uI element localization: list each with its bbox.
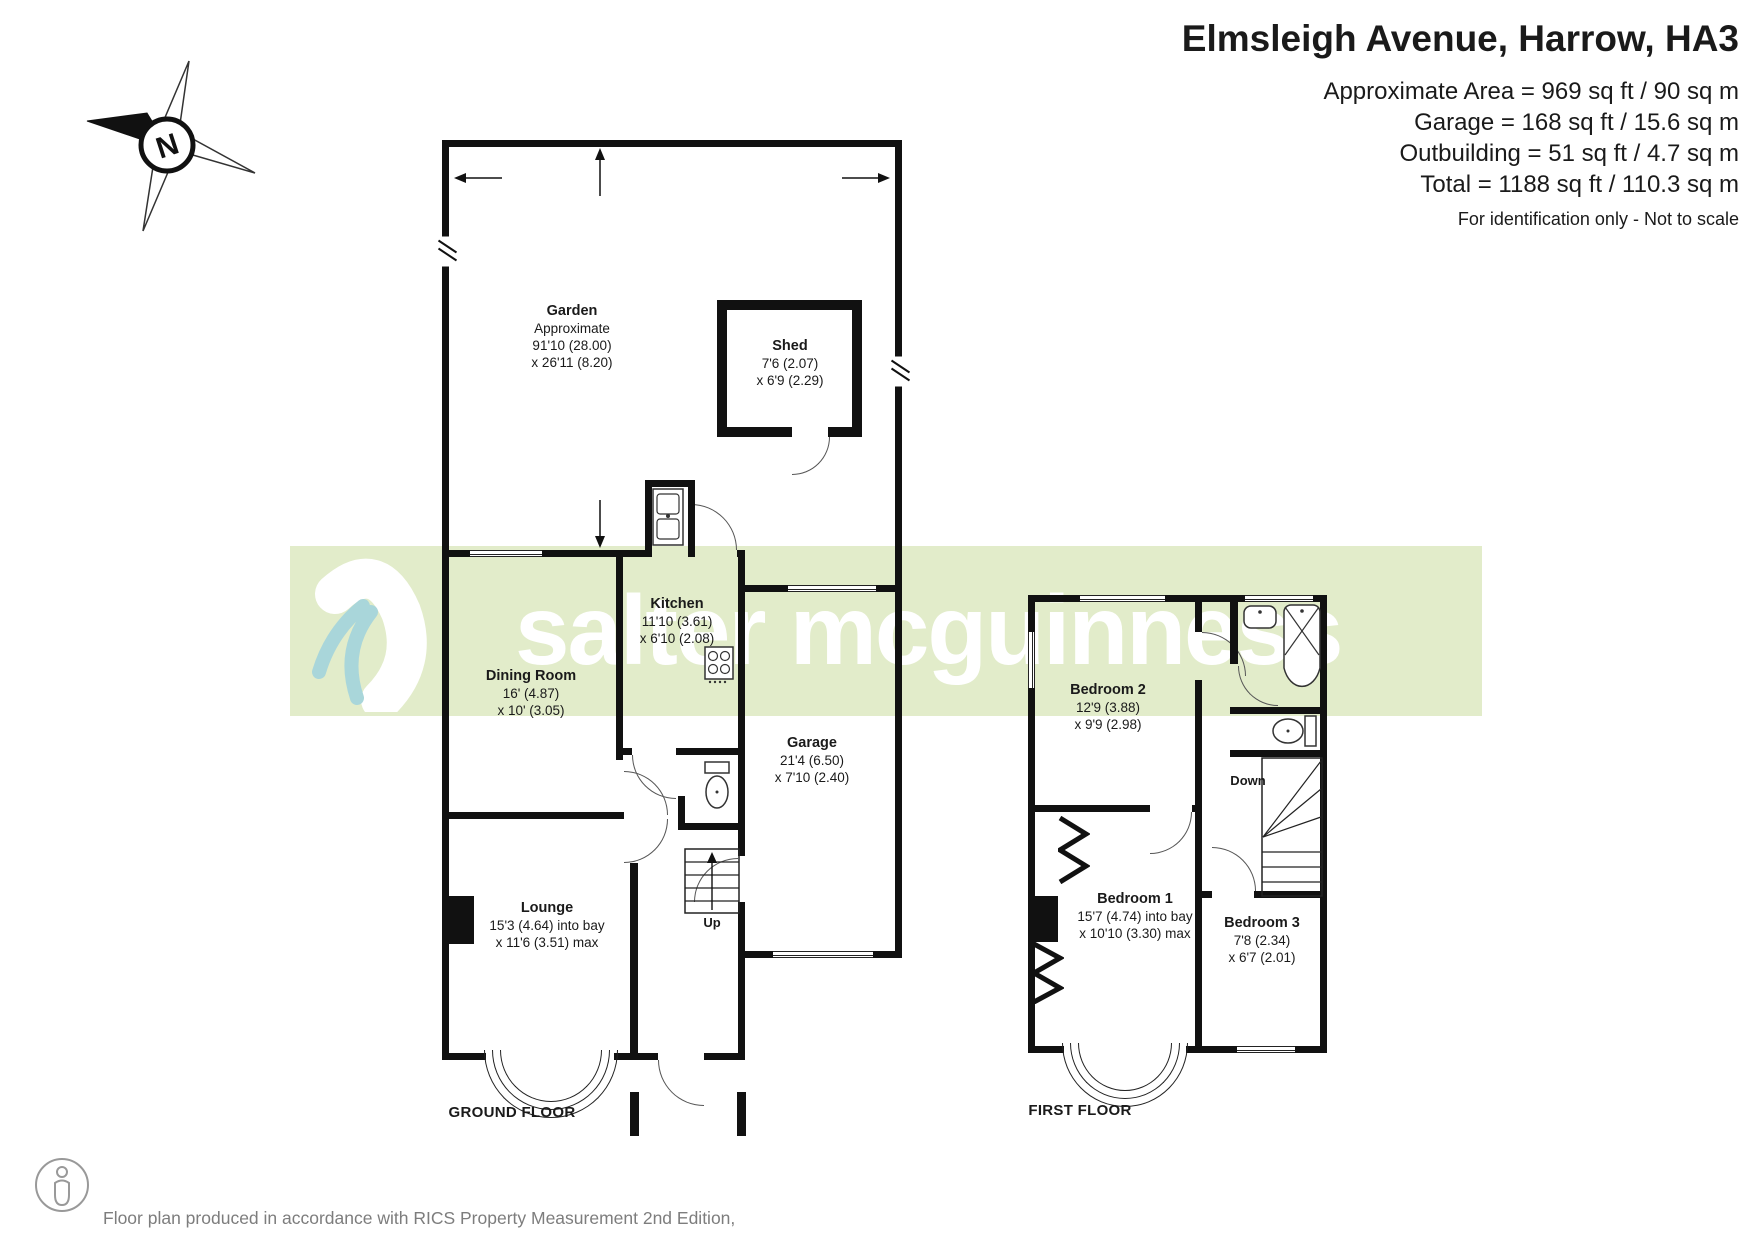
- arrow-left-icon: [452, 170, 504, 191]
- room-name: Garden: [531, 303, 612, 320]
- wall: [738, 902, 745, 1060]
- arrow-up-icon: [592, 146, 608, 203]
- toilet-icon: [700, 760, 734, 821]
- chimney-pier: [442, 896, 474, 944]
- room-label-kitchen: Kitchen 11'10 (3.61) x 6'10 (2.08): [640, 596, 715, 647]
- room-label-dining: Dining Room 16' (4.87) x 10' (3.05): [486, 668, 576, 719]
- wall: [717, 427, 792, 437]
- chimney-pier: [1028, 896, 1058, 942]
- room-name: Bedroom 3: [1224, 915, 1300, 932]
- garage-door: [773, 951, 873, 958]
- room-name: Shed: [756, 338, 823, 355]
- room-label-bedroom2: Bedroom 2 12'9 (3.88) x 9'9 (2.98): [1070, 682, 1146, 733]
- kitchen-sink-icon: [652, 488, 684, 551]
- wall: [616, 748, 632, 755]
- room-dim: 21'4 (6.50): [775, 752, 850, 769]
- room-label-garage: Garage 21'4 (6.50) x 7'10 (2.40): [775, 735, 850, 786]
- wall: [678, 823, 745, 830]
- wall: [442, 140, 449, 557]
- wall: [895, 585, 902, 958]
- bath-icon: [1281, 603, 1323, 704]
- floor-label-ground: GROUND FLOOR: [449, 1104, 576, 1121]
- room-dim: 12'9 (3.88): [1070, 699, 1146, 716]
- wall: [688, 480, 695, 557]
- window: [1237, 1046, 1295, 1053]
- room-name: Lounge: [489, 900, 604, 917]
- alcove-zigzag: [1032, 942, 1064, 1009]
- area-line: Garage = 168 sq ft / 15.6 sq m: [1182, 107, 1739, 138]
- area-line: Total = 1188 sq ft / 110.3 sq m: [1182, 169, 1739, 200]
- wall: [645, 480, 652, 557]
- wall: [1202, 891, 1212, 898]
- room-label-shed: Shed 7'6 (2.07) x 6'9 (2.29): [756, 338, 823, 389]
- footer-attribution: Floor plan produced in accordance with R…: [103, 1158, 896, 1241]
- wall: [676, 748, 745, 755]
- staircase-up: [684, 848, 740, 919]
- wall: [745, 951, 773, 958]
- hob-icon: [704, 646, 734, 689]
- room-name: Bedroom 1: [1077, 891, 1192, 908]
- disclaimer: For identification only - Not to scale: [1182, 209, 1739, 230]
- window: [788, 585, 876, 592]
- wall: [636, 1053, 658, 1060]
- floorplan-page: Elmsleigh Avenue, Harrow, HA3 Approximat…: [0, 0, 1755, 1241]
- wall: [873, 951, 902, 958]
- room-dim: 15'3 (4.64) into bay: [489, 917, 604, 934]
- room-name: Garage: [775, 735, 850, 752]
- room-label-bedroom3: Bedroom 3 7'8 (2.34) x 6'7 (2.01): [1224, 915, 1300, 966]
- wall: [1195, 602, 1202, 632]
- window: [1080, 595, 1165, 602]
- window: [1028, 632, 1035, 688]
- wall: [717, 300, 727, 437]
- room-dim: x 6'9 (2.29): [756, 372, 823, 389]
- room-dim: x 9'9 (2.98): [1070, 716, 1146, 733]
- room-dim: 11'10 (3.61): [640, 613, 715, 630]
- wall: [738, 550, 745, 592]
- room-dim: 7'8 (2.34): [1224, 932, 1300, 949]
- wall: [442, 812, 624, 819]
- wall: [737, 1092, 746, 1136]
- room-dim: 7'6 (2.07): [756, 355, 823, 372]
- wall: [442, 550, 449, 1060]
- wall: [630, 863, 638, 1053]
- arrow-down-icon: [592, 498, 608, 555]
- wall: [1195, 680, 1202, 805]
- wall: [852, 300, 862, 437]
- toilet-icon: [1268, 712, 1318, 755]
- door-arc: [1150, 812, 1192, 854]
- room-label-lounge: Lounge 15'3 (4.64) into bay x 11'6 (3.51…: [489, 900, 604, 951]
- wall: [630, 1092, 639, 1136]
- wall: [1028, 1046, 1064, 1053]
- watermark-logo-icon: [297, 550, 477, 717]
- stairs-label: Up: [703, 915, 720, 930]
- room-name: Dining Room: [486, 668, 576, 685]
- room-dim: x 7'10 (2.40): [775, 769, 850, 786]
- area-line: Approximate Area = 969 sq ft / 90 sq m: [1182, 76, 1739, 107]
- room-dim: 15'7 (4.74) into bay: [1077, 908, 1192, 925]
- stairs-label: Down: [1230, 773, 1265, 788]
- room-dim: 91'10 (28.00): [531, 337, 612, 354]
- area-line: Outbuilding = 51 sq ft / 4.7 sq m: [1182, 138, 1739, 169]
- basin-icon: [1243, 605, 1277, 634]
- staircase-down: [1261, 757, 1323, 902]
- room-dim: x 11'6 (3.51) max: [489, 934, 604, 951]
- wall: [738, 592, 745, 856]
- room-dim: x 6'10 (2.08): [640, 630, 715, 647]
- room-dim: Approximate: [531, 320, 612, 337]
- room-dim: x 26'11 (8.20): [531, 354, 612, 371]
- wall-break-icon: [432, 237, 459, 267]
- footer-line1: Floor plan produced in accordance with R…: [103, 1206, 896, 1230]
- wall: [442, 140, 902, 147]
- window: [1245, 595, 1313, 602]
- person-icon: [33, 1156, 91, 1219]
- room-label-bedroom1: Bedroom 1 15'7 (4.74) into bay x 10'10 (…: [1077, 891, 1192, 942]
- alcove-zigzag: [1058, 816, 1090, 889]
- room-dim: x 10' (3.05): [486, 702, 576, 719]
- door-arc: [658, 1060, 704, 1106]
- north-compass-icon: N: [85, 55, 260, 240]
- floor-label-first: FIRST FLOOR: [1028, 1102, 1131, 1119]
- wall: [1195, 805, 1202, 1053]
- wall: [616, 550, 623, 760]
- header: Elmsleigh Avenue, Harrow, HA3 Approximat…: [1182, 18, 1739, 230]
- door-arc: [691, 504, 737, 550]
- wall: [1028, 805, 1150, 812]
- room-name: Bedroom 2: [1070, 682, 1146, 699]
- room-label-garden: Garden Approximate 91'10 (28.00) x 26'11…: [531, 303, 612, 371]
- wall: [442, 1053, 486, 1060]
- wall: [1230, 602, 1238, 664]
- wall: [717, 300, 862, 310]
- page-title: Elmsleigh Avenue, Harrow, HA3: [1182, 18, 1739, 60]
- room-dim: x 6'7 (2.01): [1224, 949, 1300, 966]
- window: [470, 550, 542, 557]
- room-dim: 16' (4.87): [486, 685, 576, 702]
- arrow-right-icon: [840, 170, 892, 191]
- wall: [704, 1053, 745, 1060]
- room-dim: x 10'10 (3.30) max: [1077, 925, 1192, 942]
- door-arc: [792, 437, 830, 475]
- door-arc: [624, 819, 668, 863]
- wall: [828, 427, 862, 437]
- wall-break-icon: [885, 357, 912, 387]
- room-name: Kitchen: [640, 596, 715, 613]
- door-arc: [1212, 847, 1256, 891]
